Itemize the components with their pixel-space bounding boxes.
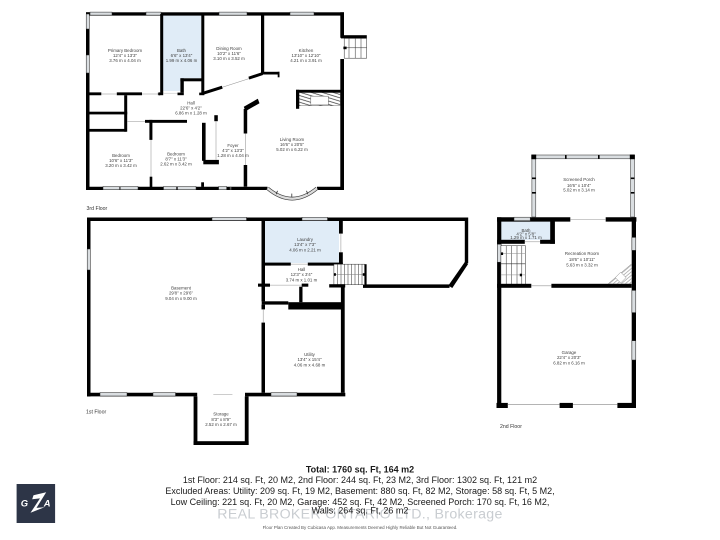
svg-text:Total: 1760 sq. Ft, 164 m2: Total: 1760 sq. Ft, 164 m2 xyxy=(306,464,414,474)
svg-text:Excluded Areas: Utility: 209 s: Excluded Areas: Utility: 209 sq. Ft, 19 … xyxy=(165,486,554,496)
svg-text:Screened Porch16'6" x 10'4"5.0: Screened Porch16'6" x 10'4"5.02 m x 3.14… xyxy=(563,177,595,193)
svg-text:Floor Plan Created By Cubicasa: Floor Plan Created By Cubicasa App. Meas… xyxy=(263,525,458,530)
svg-text:1st Floor: 1st Floor xyxy=(86,410,106,416)
svg-text:Living Room16'6" x 20'5"5.02 m: Living Room16'6" x 20'5"5.02 m x 6.22 m xyxy=(276,137,308,152)
svg-text:A: A xyxy=(43,497,51,508)
svg-text:Walls: 264 sq. Ft, 26 m2: Walls: 264 sq. Ft, 26 m2 xyxy=(312,506,409,516)
svg-text:Dining Room10'2" x 11'6"3.10 m: Dining Room10'2" x 11'6"3.10 m x 3.52 m xyxy=(213,46,245,61)
svg-text:G: G xyxy=(21,497,28,508)
svg-text:3rd Floor: 3rd Floor xyxy=(87,206,108,212)
svg-text:2nd Floor: 2nd Floor xyxy=(500,424,522,430)
svg-text:Recreation Room18'6" x 10'11"5: Recreation Room18'6" x 10'11"5.63 m x 3.… xyxy=(565,251,600,268)
svg-text:1st Floor: 214 sq. Ft, 20 M2,: 1st Floor: 214 sq. Ft, 20 M2, 2nd Floor:… xyxy=(183,475,537,485)
